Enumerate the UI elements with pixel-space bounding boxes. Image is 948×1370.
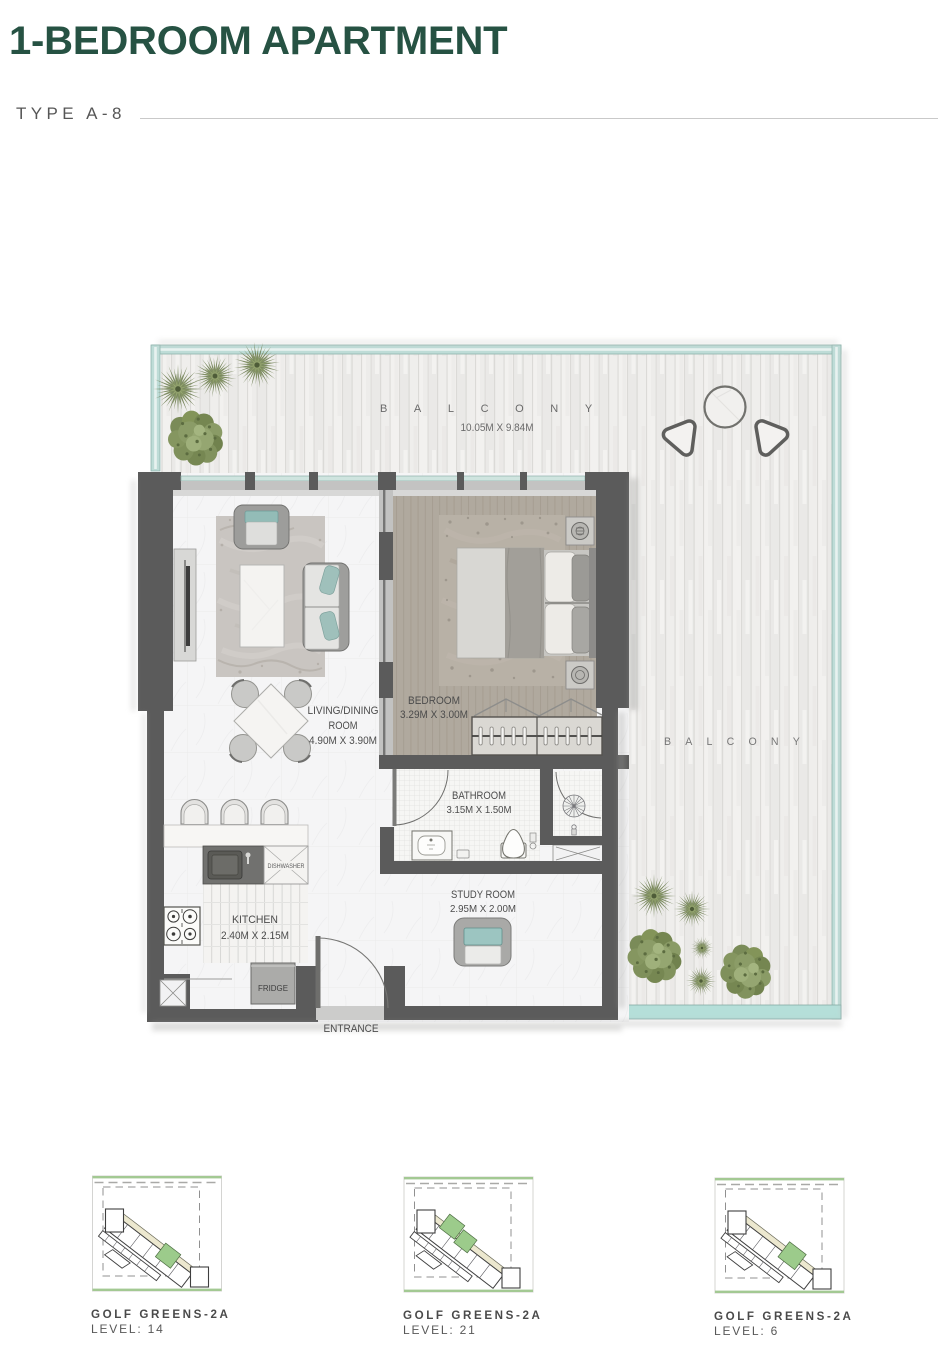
svg-text:ROOM: ROOM xyxy=(329,720,358,732)
svg-text:STUDY ROOM: STUDY ROOM xyxy=(451,889,515,901)
svg-text:2.95M X 2.00M: 2.95M X 2.00M xyxy=(450,904,516,915)
svg-text:LIVING/DINING: LIVING/DINING xyxy=(308,705,379,717)
svg-text:2.40M X 2.15M: 2.40M X 2.15M xyxy=(221,930,289,942)
svg-text:KITCHEN: KITCHEN xyxy=(232,914,278,926)
svg-text:3.29M X 3.00M: 3.29M X 3.00M xyxy=(400,709,468,721)
svg-text:DISHWASHER: DISHWASHER xyxy=(268,863,305,870)
svg-text:LEVEL: 14: LEVEL: 14 xyxy=(91,1322,165,1336)
svg-text:BEDROOM: BEDROOM xyxy=(408,695,460,707)
svg-text:FRIDGE: FRIDGE xyxy=(258,984,288,993)
svg-text:LEVEL: 6: LEVEL: 6 xyxy=(714,1324,779,1338)
svg-text:GOLF GREENS-2A: GOLF GREENS-2A xyxy=(91,1308,230,1321)
svg-text:3.15M X 1.50M: 3.15M X 1.50M xyxy=(447,805,512,816)
svg-text:BALCONY: BALCONY xyxy=(664,736,814,748)
svg-text:BALCONY: BALCONY xyxy=(380,403,619,415)
svg-text:4.90M X 3.90M: 4.90M X 3.90M xyxy=(309,735,377,747)
svg-text:10.05M X 9.84M: 10.05M X 9.84M xyxy=(461,422,534,434)
svg-text:LEVEL: 21: LEVEL: 21 xyxy=(403,1323,477,1337)
svg-text:BATHROOM: BATHROOM xyxy=(452,790,506,802)
svg-text:GOLF GREENS-2A: GOLF GREENS-2A xyxy=(403,1309,542,1322)
svg-text:ENTRANCE: ENTRANCE xyxy=(324,1023,379,1035)
svg-text:GOLF GREENS-2A: GOLF GREENS-2A xyxy=(714,1310,853,1323)
